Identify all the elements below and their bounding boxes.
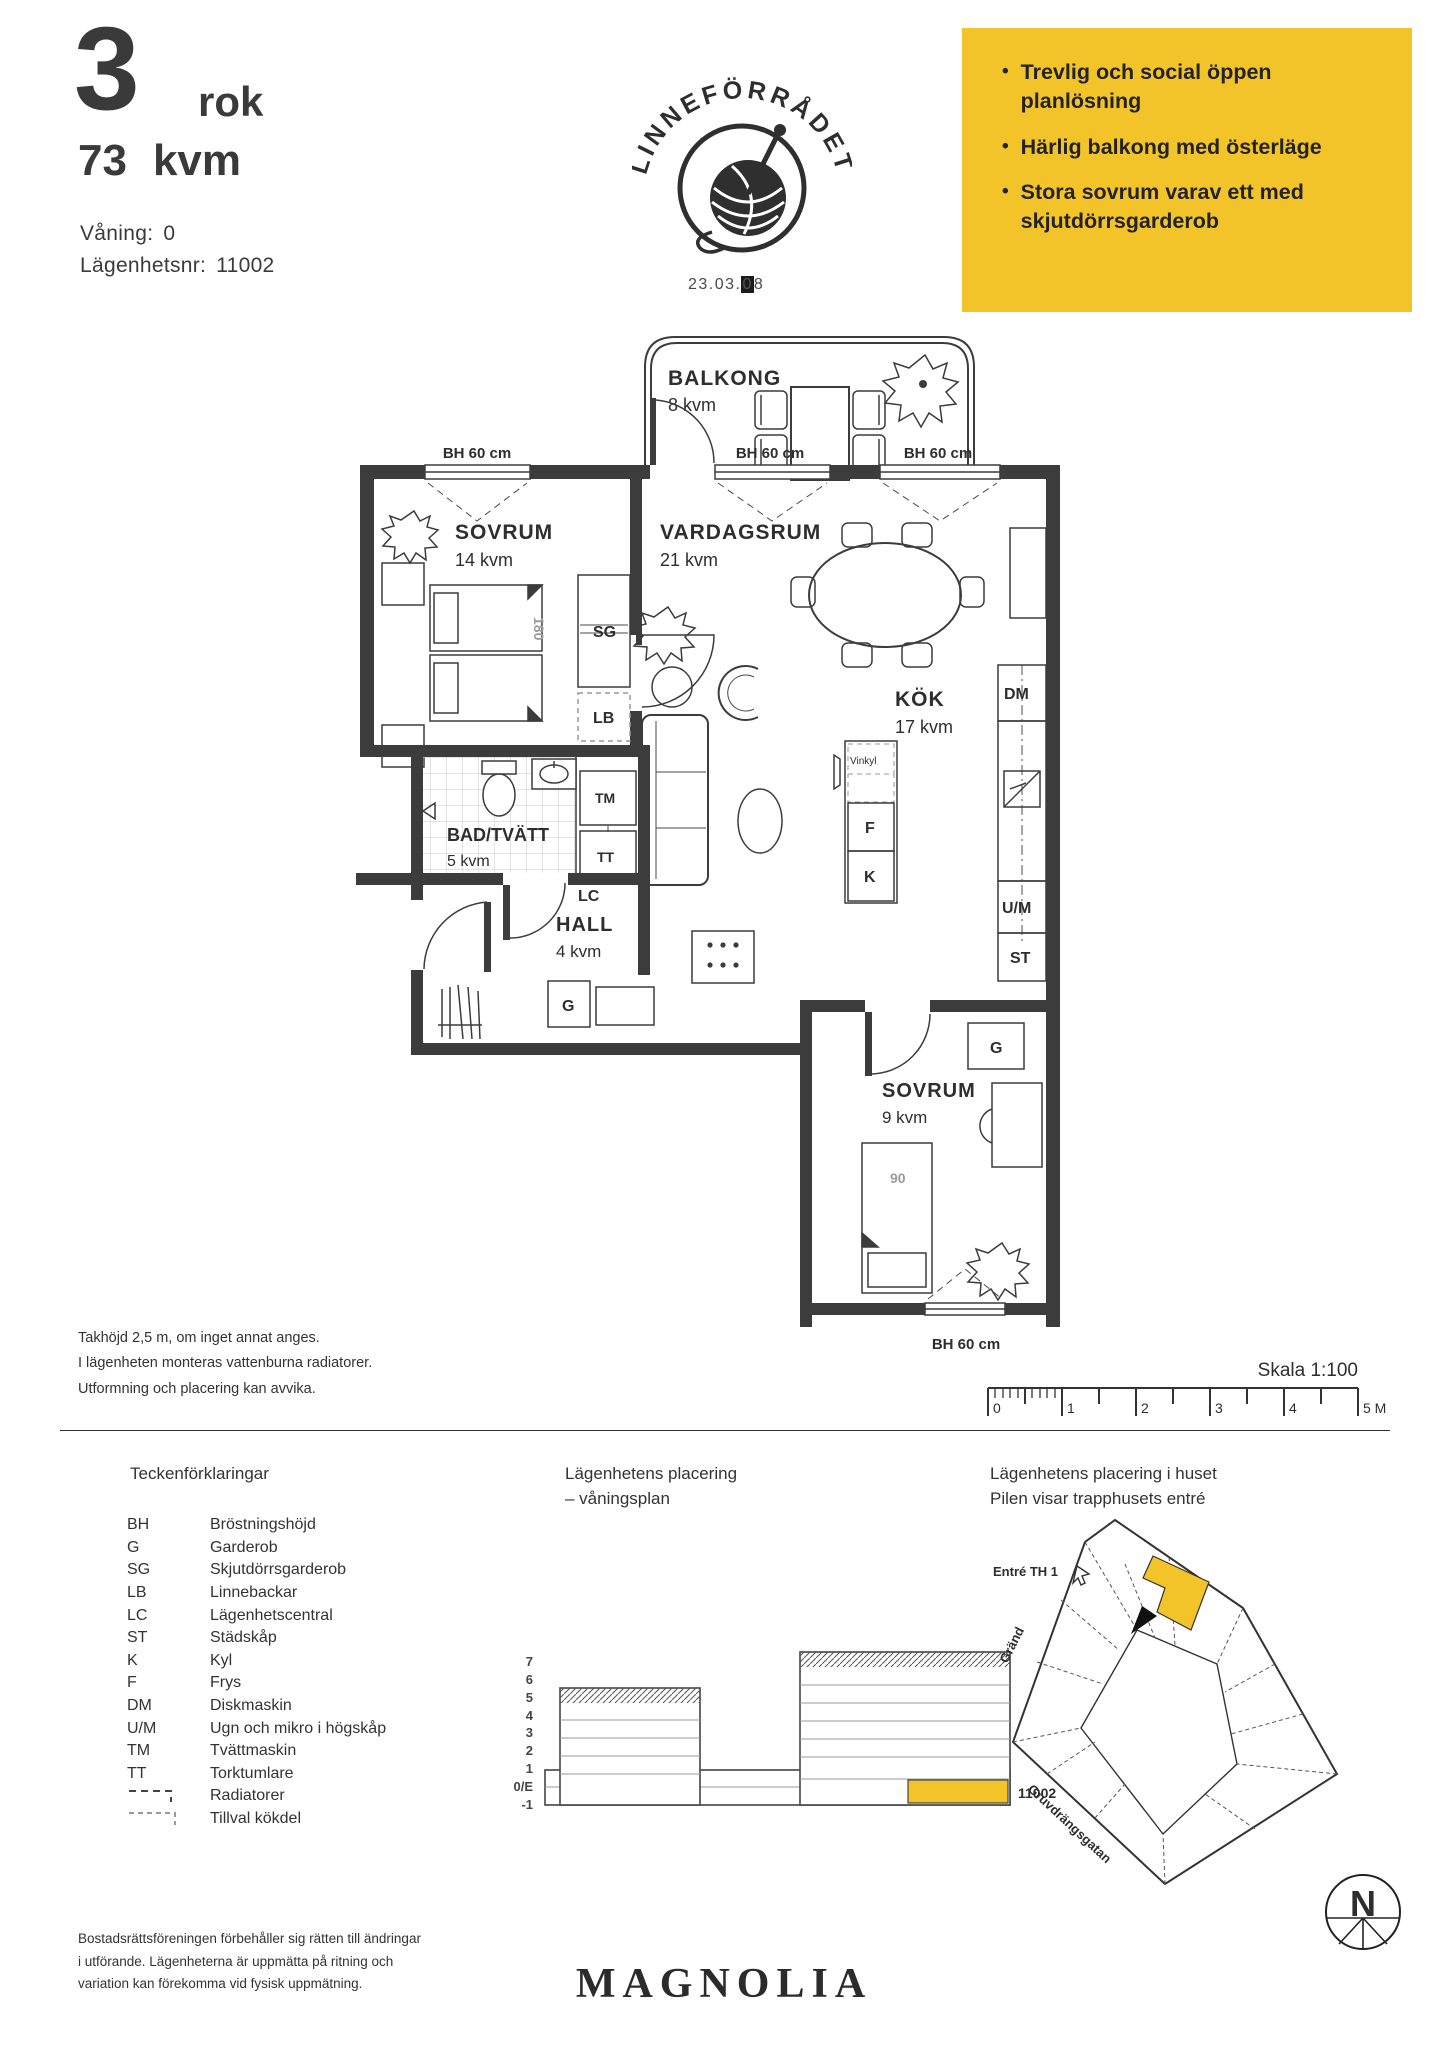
plan-date-prefix: 23.03. <box>688 276 741 293</box>
area-unit: kvm <box>153 136 241 186</box>
lb-label: LB <box>593 710 614 727</box>
walls <box>356 465 1060 1327</box>
note-line-1: Takhöjd 2,5 m, om inget annat anges. <box>78 1326 372 1351</box>
floor-0e: 0/E <box>513 1779 533 1794</box>
entrance-label: Entré TH 1 <box>993 1564 1058 1579</box>
single-bed <box>862 1143 932 1293</box>
floor-5: 5 <box>526 1690 533 1705</box>
placement-house-title-line2: Pilen visar trapphusets entré <box>990 1487 1217 1512</box>
brand-logo: LINNEFÖRRÅDET <box>632 36 852 276</box>
highlighted-unit-area <box>1143 1556 1209 1630</box>
balcony-label: BALKONG <box>668 367 781 390</box>
placement-house-title: Lägenhetens placering i huset Pilen visa… <box>990 1462 1217 1511</box>
dm-label: DM <box>1004 686 1029 703</box>
legend-row: STStädskåp <box>127 1627 386 1650</box>
scale-bar: Skala 1:100 0 1 2 3 4 5 M <box>978 1360 1408 1432</box>
bullet-icon: • <box>1002 133 1009 162</box>
building-outline <box>1013 1520 1337 1884</box>
street-left-label: Gränd <box>996 1624 1027 1665</box>
developer-logo: MAGNOLIA <box>576 1960 872 2008</box>
legend-abbr: SG <box>127 1561 210 1579</box>
floor-row: Våning: 0 <box>80 222 175 246</box>
area-value: 73 <box>78 136 127 186</box>
legend-label: Städskåp <box>210 1629 277 1647</box>
bullet-icon: • <box>1002 58 1009 116</box>
pendant-lamp-icon <box>834 755 840 789</box>
bh-label-1: BH 60 cm <box>443 445 511 462</box>
armchair <box>719 666 758 720</box>
bedroom2: G SOVRUM 9 kvm 90 <box>862 1012 1042 1300</box>
legend-row: TMTvättmaskin <box>127 1740 386 1763</box>
sink-icon <box>532 759 576 789</box>
double-bed <box>382 563 542 767</box>
placement-floor-title-line2: – våningsplan <box>565 1487 737 1512</box>
footer-disclaimer: Bostadsrättsföreningen förbehåller sig r… <box>78 1928 421 1996</box>
dining-table <box>791 523 984 667</box>
legend-abbr: DM <box>127 1697 210 1715</box>
tm-label: TM <box>595 790 615 806</box>
floor-2: 2 <box>526 1743 533 1758</box>
legend-row: FFrys <box>127 1672 386 1695</box>
hall-area: 4 kvm <box>556 942 601 961</box>
kitchen-island: Vinkyl F K <box>834 741 897 903</box>
placement-floor-title-line1: Lägenhetens placering <box>565 1462 737 1487</box>
apartment-number-row: Lägenhetsnr: 11002 <box>80 254 275 278</box>
legend-label: Torktumlare <box>210 1765 294 1783</box>
st-label: ST <box>1010 950 1031 967</box>
legend-label: Lägenhetscentral <box>210 1607 333 1625</box>
compass-icon: N <box>1326 1875 1400 1949</box>
floor-minus1: -1 <box>521 1797 533 1812</box>
coat-rack-icon <box>438 985 482 1039</box>
bed-width-90: 90 <box>890 1170 906 1186</box>
dotted-table <box>692 931 754 983</box>
lc-label: LC <box>578 888 600 905</box>
kitchen: KÖK 17 kvm DM U/M ST Vinkyl F <box>834 528 1046 981</box>
legend-abbr: TT <box>127 1765 210 1783</box>
legend-label: Tillval kökdel <box>210 1810 301 1828</box>
legend-title: Teckenförklaringar <box>130 1462 269 1487</box>
plant-icon <box>382 511 438 563</box>
legend-abbr: ST <box>127 1629 210 1647</box>
legend-row: LCLägenhetscentral <box>127 1604 386 1627</box>
plan-date-boxed: 0 <box>741 276 753 293</box>
kitchen-label: KÖK <box>895 688 945 711</box>
bedroom2-area: 9 kvm <box>882 1108 927 1127</box>
ottoman <box>738 789 782 853</box>
yarn-ball-icon <box>698 124 786 252</box>
note-line-2: I lägenheten monteras vattenburna radiat… <box>78 1351 372 1376</box>
legend-row: SGSkjutdörrsgarderob <box>127 1559 386 1582</box>
legend-row: TTTorktumlare <box>127 1763 386 1786</box>
tt-label: TT <box>597 849 615 865</box>
legend-abbr: F <box>127 1674 210 1692</box>
vinkyl-label: Vinkyl <box>850 756 877 767</box>
bh-label-4: BH 60 cm <box>932 1336 1000 1353</box>
floor-plan: BALKONG 8 kvm <box>350 325 1070 1400</box>
scale-tick-4: 4 <box>1289 1400 1297 1416</box>
site-plan: Entré TH 1 Gränd Gruvdrängsgatan N <box>985 1512 1440 1962</box>
entry-door-arc <box>424 902 487 969</box>
bedroom2-label: SOVRUM <box>882 1080 976 1102</box>
scale-tick-1: 1 <box>1067 1400 1075 1416</box>
plant-icon <box>967 1243 1029 1300</box>
bullet-icon: • <box>1002 178 1009 236</box>
hall-bench <box>596 987 654 1025</box>
bed-width-180: 180 <box>531 617 547 641</box>
bedroom2-door-arc <box>872 1014 930 1074</box>
placement-house-title-line1: Lägenhetens placering i huset <box>990 1462 1217 1487</box>
bath-area: 5 kvm <box>447 853 490 870</box>
highlight-text-1: Trevlig och social öppen planlösning <box>1021 58 1378 116</box>
elevation-drawing <box>545 1652 1010 1805</box>
entry-door-leaf <box>484 902 491 972</box>
floor-numbers: 7 6 5 4 3 2 1 0/E -1 <box>513 1654 533 1812</box>
legend-label: Linnebackar <box>210 1584 297 1602</box>
legend-abbr: G <box>127 1539 210 1557</box>
disclaimer-line-1: Bostadsrättsföreningen förbehåller sig r… <box>78 1928 421 1951</box>
floor-6: 6 <box>526 1672 533 1687</box>
legend-row: GGarderob <box>127 1537 386 1560</box>
legend-label: Ugn och mikro i högskåp <box>210 1720 386 1738</box>
balcony-door-leaf <box>650 398 656 465</box>
um-label: U/M <box>1002 900 1031 917</box>
scale-ruler <box>988 1388 1358 1416</box>
legend-row: KKyl <box>127 1650 386 1673</box>
note-line-3: Utformning och placering kan avvika. <box>78 1377 372 1402</box>
legend-row: BHBröstningshöjd <box>127 1514 386 1537</box>
hall: LC HALL 4 kvm G <box>424 888 654 1039</box>
disclaimer-line-2: i utförande. Lägenheterna är uppmätta på… <box>78 1951 421 1974</box>
legend-abbr: LC <box>127 1607 210 1625</box>
living-label: VARDAGSRUM <box>660 521 821 544</box>
legend-list: BHBröstningshöjd GGarderob SGSkjutdörrsg… <box>127 1514 386 1830</box>
legend-label: Frys <box>210 1674 241 1692</box>
rooms-unit: rok <box>198 78 263 126</box>
scale-tick-3: 3 <box>1215 1400 1223 1416</box>
entrance-arrow-icon <box>1131 1606 1157 1634</box>
bh-label-2: BH 60 cm <box>736 445 804 462</box>
bedroom2-wardrobe: G <box>968 1023 1024 1069</box>
legend-label: Radiatorer <box>210 1787 285 1805</box>
balcony-plant-icon <box>883 355 958 427</box>
plan-date: 23.03.08 <box>688 276 764 294</box>
section-divider <box>60 1430 1390 1431</box>
hall-wardrobe: G <box>548 981 590 1027</box>
legend-row: DMDiskmaskin <box>127 1695 386 1718</box>
legend-label: Tvättmaskin <box>210 1742 296 1760</box>
highlight-text-3: Stora sovrum varav ett med skjutdörrsgar… <box>1021 178 1378 236</box>
placement-floor-title: Lägenhetens placering – våningsplan <box>565 1462 737 1511</box>
living-area: 21 kvm <box>660 550 718 570</box>
legend-abbr: TM <box>127 1742 210 1760</box>
plan-date-suffix: 8 <box>754 276 764 293</box>
sg-label: SG <box>593 624 616 641</box>
legend-row: Radiatorer <box>127 1785 386 1808</box>
legend-label: Diskmaskin <box>210 1697 292 1715</box>
living-room: VARDAGSRUM 21 kvm <box>633 521 984 983</box>
desk <box>980 1083 1042 1167</box>
legend-abbr: LB <box>127 1584 210 1602</box>
bath-label: BAD/TVÄTT <box>447 825 549 845</box>
legend-label: Garderob <box>210 1539 278 1557</box>
floor-4: 4 <box>526 1708 534 1723</box>
floor-1: 1 <box>526 1761 533 1776</box>
washer-dryer-column: TM TT <box>580 771 636 881</box>
bedroom1-door-arc <box>642 635 714 707</box>
f-label: F <box>865 820 875 837</box>
kitchen-area: 17 kvm <box>895 717 953 737</box>
plan-notes: Takhöjd 2,5 m, om inget annat anges. I l… <box>78 1326 372 1402</box>
floor-3: 3 <box>526 1725 533 1740</box>
legend-row: LBLinnebackar <box>127 1582 386 1605</box>
highlight-item: • Stora sovrum varav ett med skjutdörrsg… <box>1002 178 1378 236</box>
bathroom-door-leaf <box>503 885 510 940</box>
legend-row: Tillval kökdel <box>127 1808 386 1831</box>
floor-value: 0 <box>163 222 175 246</box>
toilet-icon <box>482 761 516 816</box>
legend-label: Skjutdörrsgarderob <box>210 1561 346 1579</box>
scale-tick-5: 5 M <box>1363 1400 1386 1416</box>
scale-title: Skala 1:100 <box>1258 1360 1358 1381</box>
floor-7: 7 <box>526 1654 533 1669</box>
scale-tick-2: 2 <box>1141 1400 1149 1416</box>
highlight-item: • Trevlig och social öppen planlösning <box>1002 58 1378 116</box>
bedroom1-area: 14 kvm <box>455 550 513 570</box>
legend-label: Bröstningshöjd <box>210 1516 316 1534</box>
optional-kitchen-symbol-icon <box>127 1809 210 1830</box>
sofa <box>642 715 708 885</box>
linen-cabinet: LB <box>578 693 630 741</box>
disclaimer-line-3: variation kan förekomma vid fysisk uppmä… <box>78 1973 421 1996</box>
k-label: K <box>864 869 876 886</box>
legend-row: U/MUgn och mikro i högskåp <box>127 1717 386 1740</box>
scale-tick-0: 0 <box>993 1400 1001 1416</box>
radiator-symbol-icon <box>127 1786 210 1807</box>
apartment-area: 73 kvm <box>78 136 241 186</box>
bedroom1-label: SOVRUM <box>455 521 553 544</box>
g-label-bedroom2: G <box>990 1040 1002 1057</box>
legend-abbr: BH <box>127 1516 210 1534</box>
bedroom2-door-leaf <box>865 1012 872 1076</box>
hall-label: HALL <box>556 914 613 936</box>
highlights-box: • Trevlig och social öppen planlösning •… <box>962 28 1412 312</box>
apartment-number-value: 11002 <box>216 254 274 278</box>
sliding-wardrobe: SG <box>578 575 630 687</box>
floor-label: Våning: <box>80 222 153 246</box>
highlight-text-2: Härlig balkong med österläge <box>1021 133 1322 162</box>
rooms-count: 3 <box>74 10 140 128</box>
legend-abbr: U/M <box>127 1720 210 1738</box>
legend-label: Kyl <box>210 1652 232 1670</box>
apartment-number-label: Lägenhetsnr: <box>80 254 206 278</box>
tall-cabinet <box>1010 528 1046 618</box>
legend-abbr: K <box>127 1652 210 1670</box>
g-label-hall: G <box>562 998 574 1015</box>
bh-label-3: BH 60 cm <box>904 445 972 462</box>
highlight-item: • Härlig balkong med österläge <box>1002 133 1378 162</box>
